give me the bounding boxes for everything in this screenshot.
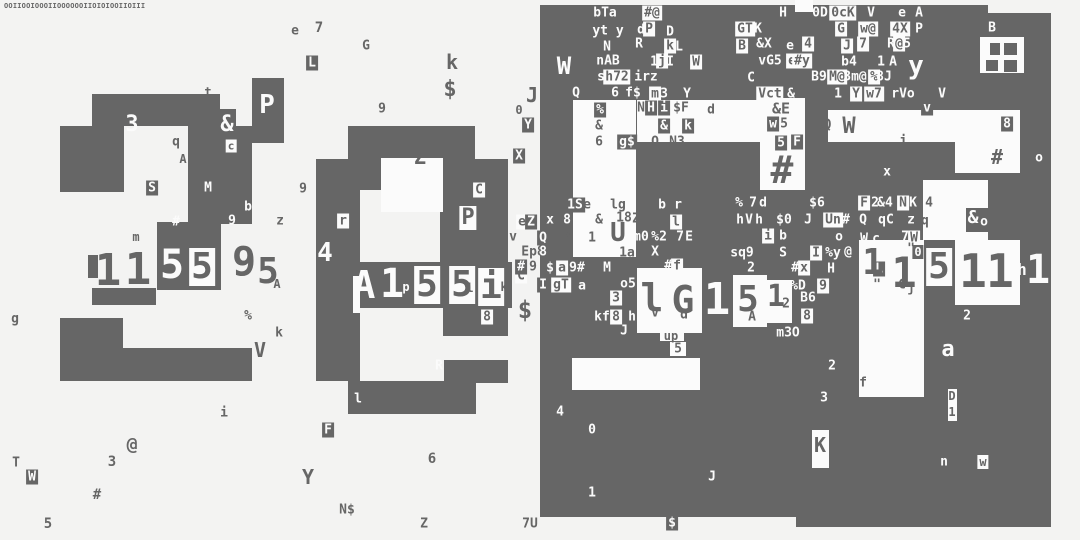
glyph: qC: [878, 214, 894, 227]
glyph: 9: [378, 103, 386, 116]
glyph: 18: [616, 212, 632, 225]
glyph: I: [537, 278, 549, 293]
glyph: 8: [801, 309, 813, 324]
glyph: x: [798, 261, 810, 276]
glyph: &E: [772, 102, 790, 117]
glyph: t: [204, 86, 211, 98]
glyph: 1: [588, 232, 596, 245]
glyph: 1: [986, 248, 1014, 294]
glyph: Q: [572, 87, 580, 100]
glyph: e: [786, 40, 794, 53]
glyph: #: [515, 260, 527, 275]
glyph: F: [322, 423, 334, 438]
glyph: o5: [620, 278, 636, 291]
glyph: W: [26, 470, 38, 485]
glyph: d: [707, 104, 715, 117]
glyph: j: [899, 135, 907, 148]
glyph: a: [578, 280, 586, 293]
glyph: l: [354, 393, 362, 406]
glyph: r: [674, 199, 682, 212]
glyph: K: [814, 435, 826, 455]
glyph: R: [635, 38, 643, 51]
glyph: B9: [811, 71, 827, 84]
glyph: W: [842, 116, 855, 138]
glyph: J: [841, 39, 853, 54]
glyph: b: [779, 230, 787, 243]
glyph: 1: [877, 56, 885, 69]
glyph: m0: [633, 231, 649, 244]
glyph: l: [641, 279, 664, 317]
glyph: 8J: [876, 71, 892, 84]
glyph: 9: [232, 242, 256, 282]
glyph: w: [767, 117, 779, 132]
glyph: 4X: [890, 22, 910, 37]
glyph: 1: [1026, 250, 1050, 290]
glyph: E: [683, 230, 695, 245]
glyph: b: [244, 201, 252, 214]
glyph: bTa: [593, 7, 616, 20]
glyph: #: [991, 147, 1003, 167]
glyph: 5: [926, 248, 952, 286]
glyph: K: [909, 197, 917, 210]
glyph: J: [620, 325, 628, 338]
glyph: K: [754, 23, 762, 36]
glyph: A: [353, 266, 376, 304]
glyph: l: [466, 282, 473, 294]
glyph: 9#: [569, 262, 585, 275]
glyph: @: [842, 245, 854, 260]
glyph: V: [254, 340, 266, 360]
glyph: x: [883, 166, 891, 179]
glyph: &X: [756, 38, 772, 51]
glyph: 0D: [812, 7, 828, 20]
glyph: 7: [851, 294, 859, 307]
glyph: Y: [302, 467, 314, 487]
glyph: RQ: [815, 118, 832, 132]
glyph: 1: [834, 88, 842, 101]
overlay-rect: [986, 60, 998, 71]
glyph: Z: [414, 147, 426, 167]
glyph: D: [666, 26, 674, 39]
glyph: J: [526, 85, 538, 105]
glyph: 2: [747, 262, 755, 275]
glyph: &: [499, 246, 507, 259]
glyph: w7: [864, 87, 884, 102]
glyph: %y: [825, 247, 841, 260]
glyph: C: [747, 72, 755, 85]
glyph: $6: [809, 197, 825, 210]
glyph: G: [362, 40, 370, 53]
glyph: P: [259, 92, 275, 118]
glyph: $: [443, 79, 456, 101]
glyph: e: [291, 25, 299, 38]
glyph: 4: [317, 240, 333, 266]
glyph: &: [658, 119, 670, 134]
glyph: 2: [782, 298, 790, 311]
glyph: 9: [299, 183, 307, 196]
glyph: 1: [948, 406, 955, 418]
glyph: irz: [634, 71, 657, 84]
glyph: 3m@: [843, 71, 866, 84]
glyph: A: [915, 7, 923, 20]
glyph: O: [651, 136, 659, 149]
glyph: P: [459, 206, 476, 230]
glyph: 8: [610, 310, 622, 325]
glyph: kf: [594, 311, 610, 324]
glyph: b4: [841, 56, 857, 69]
glyph: f: [671, 259, 683, 274]
glyph: o: [980, 216, 988, 229]
glyph: Y: [683, 88, 691, 101]
glyph: N: [897, 196, 909, 211]
block-rect: [360, 381, 476, 414]
glyph: w: [977, 455, 988, 469]
glyph: m3O: [776, 327, 799, 340]
glyph: 7: [857, 37, 869, 52]
glyph: 8: [539, 246, 547, 259]
glyph: e: [583, 199, 591, 212]
glitch-canvas: OOIIOOIOOOIIOOOOOOIIOIOIOOIIOIII e7GLk$9…: [0, 0, 1080, 540]
glyph: 7U: [522, 518, 538, 531]
glyph: B: [736, 39, 748, 54]
block-rect: [475, 159, 508, 182]
glyph: 1a: [619, 247, 635, 260]
glyph: J: [708, 471, 716, 484]
glyph: a: [556, 261, 568, 276]
glyph: H: [827, 263, 835, 276]
glyph: F: [858, 196, 870, 211]
glyph: @: [127, 436, 138, 454]
glyph: k: [500, 281, 507, 293]
glyph: 5: [257, 254, 279, 290]
glyph: 5: [44, 517, 52, 531]
glyph: 3: [660, 88, 668, 101]
glyph: &: [595, 214, 603, 227]
glyph: k: [446, 52, 458, 72]
glyph: #: [93, 488, 101, 502]
glyph: 4: [802, 37, 814, 52]
glyph: 0: [515, 104, 522, 116]
glyph: v: [509, 231, 517, 244]
glyph: 5: [674, 343, 682, 356]
glyph: &4: [877, 197, 893, 210]
block-rect: [60, 318, 123, 361]
glyph: 1: [862, 245, 884, 281]
glyph: 1: [588, 487, 596, 500]
glyph: #: [172, 216, 180, 229]
glyph: 1: [380, 264, 404, 304]
glyph: 4: [925, 197, 933, 210]
glyph: a: [941, 339, 954, 361]
glyph: L: [675, 41, 683, 54]
glyph: 3: [610, 291, 622, 306]
glyph: N: [603, 41, 611, 54]
glyph: b: [658, 199, 666, 212]
glyph: Z: [420, 518, 428, 531]
glyph: 1: [891, 252, 916, 294]
patch-rect: [572, 358, 700, 390]
glyph: up: [664, 330, 678, 342]
glyph: 8: [481, 310, 493, 325]
glyph: $: [518, 298, 532, 322]
glyph: S: [146, 181, 158, 196]
glyph: &: [220, 114, 233, 136]
glyph: #y: [792, 54, 812, 69]
glyph: L: [306, 56, 318, 71]
glyph: oq: [913, 215, 929, 228]
glyph: J: [804, 214, 812, 227]
glyph: N3: [669, 136, 685, 149]
glyph: #: [842, 214, 850, 227]
glyph: B: [988, 22, 996, 35]
glyph: X: [513, 149, 525, 164]
glyph: $: [666, 516, 678, 531]
block-rect: [348, 126, 360, 159]
glyph: A: [179, 153, 186, 165]
glyph: X: [649, 245, 661, 260]
block-rect: [60, 126, 124, 192]
glyph: 6: [595, 136, 603, 149]
glyph: yt y: [592, 25, 623, 38]
glyph: 5: [903, 38, 911, 51]
glyph: G: [672, 281, 695, 319]
glyph: r: [337, 214, 349, 229]
glyph: k: [682, 119, 694, 134]
glyph: I: [666, 56, 674, 69]
glyph: f: [859, 377, 867, 390]
glyph: k: [275, 327, 283, 340]
glyph: %: [594, 103, 606, 118]
block-rect: [444, 360, 508, 383]
glyph: l: [670, 215, 682, 230]
glyph: S: [779, 247, 787, 260]
glyph: w@: [858, 22, 878, 37]
glyph: V: [743, 213, 755, 228]
glyph: 6: [611, 87, 619, 100]
glyph: 8: [563, 214, 571, 227]
glyph: M: [564, 231, 572, 244]
overlay-rect: [990, 43, 1000, 55]
overlay-rect: [1004, 60, 1017, 72]
glyph: V: [938, 88, 946, 101]
glyph: 5: [414, 266, 440, 304]
glyph: C: [473, 183, 485, 198]
glyph: 0: [588, 424, 596, 437]
glyph: Z: [525, 215, 537, 230]
glyph: 1: [125, 248, 152, 292]
glyph: 5: [160, 245, 184, 285]
glyph: sq9: [730, 247, 753, 260]
glyph: G: [835, 22, 847, 37]
block-rect: [60, 360, 252, 381]
glyph: nAB: [596, 55, 619, 68]
glyph: o: [1035, 152, 1043, 165]
glyph: 9: [817, 279, 829, 294]
glyph: gT: [551, 278, 571, 293]
glyph: T: [12, 457, 20, 470]
binary-string: OOIIOOIOOOIIOOOOOOIIOIOIOOIIOIII: [4, 2, 145, 10]
glyph: 6: [428, 452, 436, 466]
glyph: GT: [735, 22, 755, 37]
glyph: W: [557, 54, 571, 78]
block-rect: [123, 348, 252, 360]
glyph: 1: [819, 136, 827, 149]
glyph: P: [643, 22, 655, 37]
glyph: R: [435, 360, 443, 373]
block-rect: [796, 517, 1051, 527]
glyph: V: [867, 7, 875, 20]
glyph: 8: [1001, 117, 1013, 132]
glyph: o: [835, 231, 843, 244]
glyph: 5: [189, 248, 215, 286]
glyph: %: [735, 197, 743, 210]
glyph: i: [658, 101, 670, 116]
glyph: Y: [850, 87, 862, 102]
glyph: #@: [642, 6, 662, 21]
glyph: 7: [315, 21, 323, 35]
glyph: H: [779, 7, 787, 20]
glyph: 1S: [565, 198, 585, 213]
glyph: D: [948, 390, 955, 402]
glyph: Q: [859, 214, 867, 227]
glyph: 6: [851, 262, 859, 275]
glyph: N$: [339, 504, 355, 517]
glyph: c: [226, 140, 237, 153]
glyph: vG5: [758, 55, 781, 68]
patch-rect: [795, 0, 813, 12]
block-rect: [92, 94, 220, 126]
glyph: H: [645, 101, 657, 116]
glyph: 2: [659, 231, 667, 244]
glyph: 3: [820, 392, 828, 405]
glyph: 1: [95, 249, 122, 293]
glyph: M: [204, 182, 212, 195]
glyph: 9: [529, 261, 537, 274]
glyph: &: [968, 209, 979, 227]
glyph: 2: [963, 310, 971, 323]
glyph: g$: [617, 135, 637, 150]
glyph: e: [898, 7, 906, 20]
glyph: $F: [673, 102, 689, 115]
glyph: 3: [125, 114, 138, 136]
glyph: 7: [749, 197, 757, 210]
glyph: i: [762, 229, 774, 244]
glyph: f$: [625, 87, 641, 100]
glyph: 9: [228, 215, 236, 228]
glyph: N: [637, 102, 645, 115]
patch-rect: [381, 158, 443, 212]
glyph: Un: [823, 213, 843, 228]
glyph: $: [546, 262, 554, 275]
glyph: h72: [603, 70, 630, 85]
glyph: 2: [828, 360, 836, 373]
overlay-rect: [1004, 43, 1017, 55]
glyph: P: [915, 23, 923, 36]
glyph: z: [276, 215, 284, 228]
glyph: Y: [522, 118, 534, 133]
glyph: #: [771, 151, 794, 189]
glyph: &: [595, 120, 603, 133]
glyph: n: [940, 456, 948, 469]
glyph: 3: [108, 455, 116, 469]
glyph: h: [755, 214, 763, 227]
glyph: I: [810, 246, 822, 261]
glyph: 5: [737, 282, 759, 318]
glyph: i: [220, 407, 228, 420]
glyph: 1: [959, 248, 987, 294]
glyph: x: [544, 213, 556, 228]
glyph: 0cK: [829, 6, 856, 21]
glyph: B6: [800, 292, 816, 305]
glyph: y: [908, 53, 924, 79]
patch-rect: [573, 100, 636, 257]
glyph: h: [628, 311, 636, 324]
glyph: L: [500, 215, 508, 228]
glyph: A: [889, 56, 897, 69]
glyph: d: [759, 197, 767, 210]
glyph: $0: [776, 214, 792, 227]
glyph: W: [690, 55, 702, 70]
glyph: M: [603, 262, 611, 275]
glyph: %: [244, 310, 252, 323]
glyph: 1: [704, 278, 731, 322]
glyph: m: [132, 231, 139, 243]
glyph: 4: [556, 406, 564, 419]
glyph: rVo: [891, 88, 914, 101]
glyph: g: [11, 313, 19, 326]
glyph: p: [402, 281, 409, 293]
glyph: Q: [537, 231, 549, 246]
glyph: v: [921, 101, 933, 116]
glyph: q: [172, 136, 180, 149]
glyph: 5: [780, 118, 788, 131]
glyph: Z9: [632, 213, 648, 226]
